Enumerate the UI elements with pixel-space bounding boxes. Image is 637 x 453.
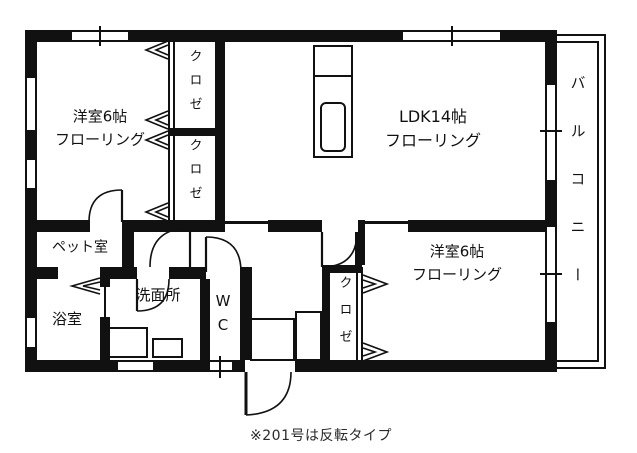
wall [268, 220, 322, 232]
closet-front-line [361, 267, 363, 360]
genkan-step [250, 318, 295, 361]
wall [232, 360, 245, 372]
wall [128, 30, 403, 42]
opening-lintel [225, 221, 268, 224]
floor-plan: 洋室6帖 フローリング LDK14帖 フローリング 洋室6帖 フローリング クロ… [0, 0, 637, 453]
room-floor-type: フローリング [412, 263, 502, 286]
wall [153, 360, 210, 372]
closet-front-line [356, 267, 358, 360]
wall [100, 279, 110, 287]
room-name: 洋室6帖 [55, 106, 145, 129]
room-label-closet1a: クロゼ [185, 49, 204, 121]
door-arc-bedroom1 [89, 190, 122, 222]
room-floor-type: フローリング [55, 128, 145, 151]
window-wc [210, 360, 232, 372]
closet-front-line [173, 42, 175, 220]
genkan-floor [295, 311, 322, 361]
washer-space [108, 327, 148, 358]
wall [545, 30, 557, 85]
sliding-partition [365, 221, 408, 224]
room-label-closet2: クロゼ [335, 276, 354, 357]
window-mullion [219, 356, 221, 378]
room-name: 洋室6帖 [412, 241, 502, 264]
bifold-door-icon [146, 131, 168, 149]
bifold-door-icon [146, 41, 168, 59]
window-mullion [99, 26, 101, 46]
wall [25, 188, 37, 318]
wall [168, 128, 215, 136]
bifold-door-icon [363, 275, 387, 293]
wall [322, 265, 330, 360]
wall [100, 267, 137, 279]
kitchen-sink [320, 102, 346, 152]
room-label-bedroom1: 洋室6帖 フローリング [55, 106, 145, 151]
room-label-bath: 浴室 [52, 308, 82, 331]
opening-line [104, 287, 106, 317]
room-name: LDK14帖 [385, 105, 481, 129]
room-label-bedroom2: 洋室6帖 フローリング [412, 241, 502, 286]
sliding-door-ldk-balcony [545, 85, 557, 180]
wall [355, 232, 365, 265]
window-left-bedroom1-a [25, 78, 37, 130]
bifold-door-icon [146, 203, 168, 221]
wall [215, 42, 225, 220]
door-arc-entrance [246, 372, 291, 415]
wall [25, 220, 90, 232]
room-label-washroom: 洗面所 [135, 284, 180, 307]
wall [295, 360, 557, 372]
door-arc-corridor [150, 228, 190, 267]
wall [25, 130, 37, 160]
caption-note: ※201号は反転タイプ [250, 425, 392, 445]
window-washroom [118, 360, 153, 372]
wall [122, 232, 134, 267]
room-label-pet-room: ペット室 [52, 238, 108, 259]
wall [169, 267, 206, 279]
door-arc-wc [206, 237, 241, 272]
wall [122, 220, 225, 232]
door-arc-bedroom2 [322, 232, 357, 267]
wall [545, 322, 557, 372]
room-floor-type: フローリング [385, 129, 481, 153]
vanity [152, 338, 183, 358]
room-label-wc: WC [215, 289, 232, 337]
room-label-ldk: LDK14帖 フローリング [385, 105, 481, 153]
wall [25, 267, 58, 279]
window-mullion [451, 26, 453, 46]
room-label-balcony: バルコニー [568, 75, 589, 315]
room-label-closet1b: クロゼ [185, 138, 204, 210]
wall [358, 220, 365, 232]
wall [200, 279, 210, 360]
kitchen-divider [315, 75, 351, 77]
bifold-door-icon [363, 343, 387, 361]
wall [25, 360, 118, 372]
wall [25, 30, 37, 78]
closet-front-line [168, 42, 170, 220]
window-bath [25, 318, 37, 347]
window-left-bedroom1-b [25, 160, 37, 188]
bifold-door-icon [72, 278, 100, 294]
wall [408, 220, 557, 232]
bifold-door-icon [146, 111, 168, 129]
